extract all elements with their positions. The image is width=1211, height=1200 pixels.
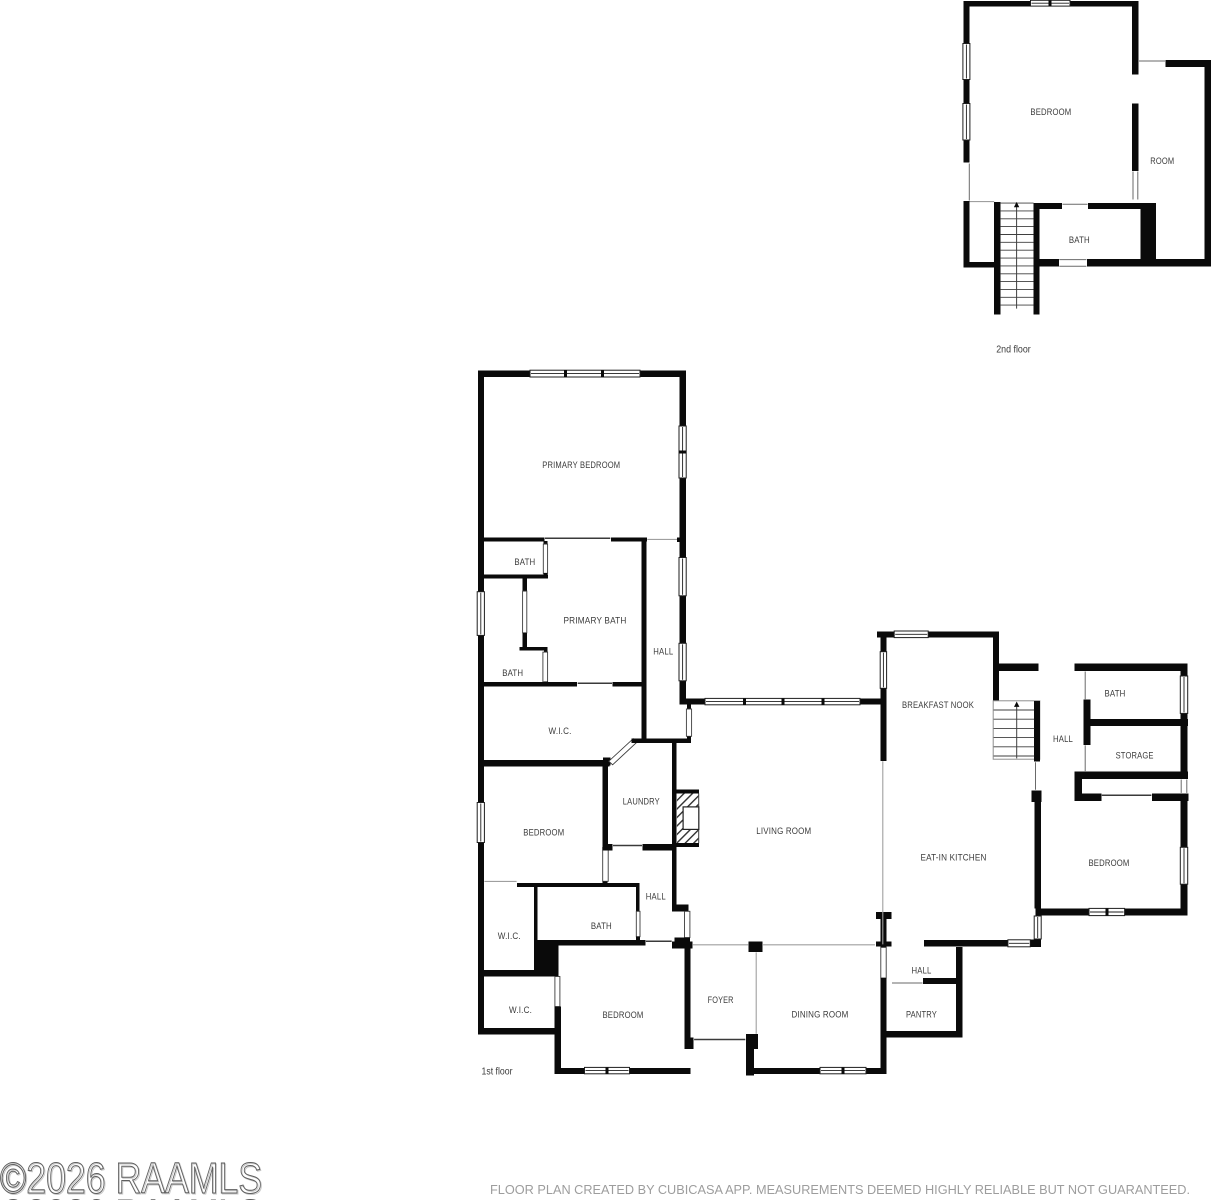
svg-text:W.I.C.: W.I.C.: [509, 1005, 532, 1015]
svg-text:EAT-IN KITCHEN: EAT-IN KITCHEN: [921, 852, 987, 862]
svg-text:BATH: BATH: [591, 921, 612, 931]
svg-text:©2026 RAAMLS: ©2026 RAAMLS: [0, 1191, 262, 1200]
svg-text:STORAGE: STORAGE: [1116, 751, 1154, 761]
svg-text:BATH: BATH: [1069, 235, 1090, 245]
svg-text:W.I.C.: W.I.C.: [498, 931, 521, 941]
svg-text:BREAKFAST NOOK: BREAKFAST NOOK: [902, 700, 975, 710]
svg-text:BATH: BATH: [502, 668, 523, 678]
svg-text:BEDROOM: BEDROOM: [1089, 858, 1130, 868]
svg-text:BEDROOM: BEDROOM: [603, 1010, 644, 1020]
svg-text:HALL: HALL: [646, 891, 666, 901]
svg-text:PRIMARY BEDROOM: PRIMARY BEDROOM: [542, 460, 620, 470]
svg-text:ROOM: ROOM: [1150, 156, 1174, 166]
svg-text:FOYER: FOYER: [708, 995, 734, 1005]
svg-text:PRIMARY BATH: PRIMARY BATH: [564, 615, 627, 625]
svg-text:FLOOR PLAN CREATED BY CUBICASA: FLOOR PLAN CREATED BY CUBICASA APP. MEAS…: [490, 1182, 1190, 1197]
svg-text:BATH: BATH: [1105, 689, 1126, 699]
svg-text:2nd floor: 2nd floor: [996, 343, 1031, 355]
svg-text:HALL: HALL: [653, 646, 673, 656]
svg-text:DINING ROOM: DINING ROOM: [792, 1010, 849, 1020]
svg-text:BEDROOM: BEDROOM: [1030, 107, 1071, 117]
svg-text:LAUNDRY: LAUNDRY: [623, 796, 660, 806]
svg-text:W.I.C.: W.I.C.: [549, 726, 572, 736]
svg-text:HALL: HALL: [1053, 734, 1073, 744]
svg-text:HALL: HALL: [912, 966, 932, 976]
svg-text:BEDROOM: BEDROOM: [523, 827, 564, 837]
svg-text:PANTRY: PANTRY: [906, 1010, 937, 1020]
svg-text:BATH: BATH: [514, 557, 535, 567]
svg-text:LIVING ROOM: LIVING ROOM: [756, 826, 811, 836]
svg-text:1st floor: 1st floor: [482, 1065, 513, 1077]
